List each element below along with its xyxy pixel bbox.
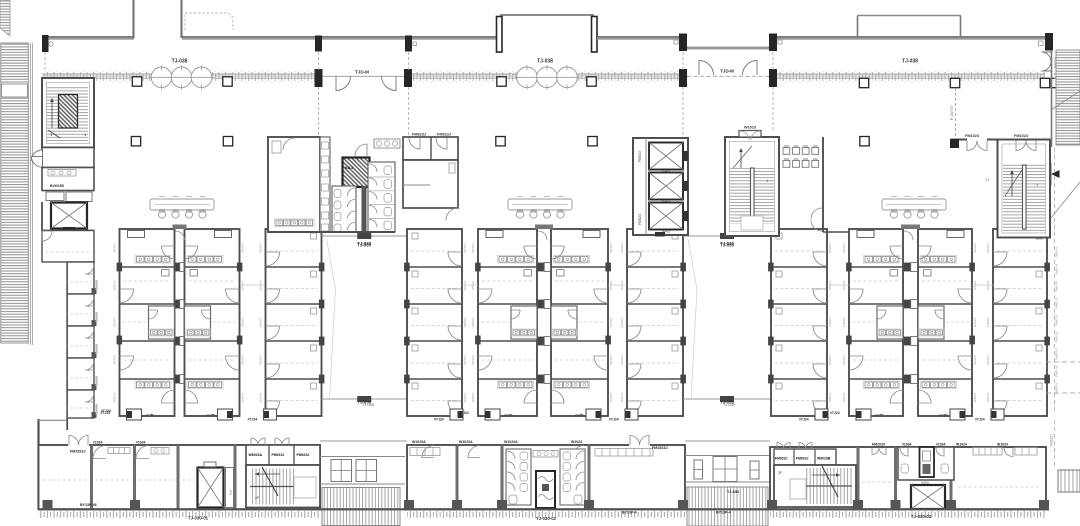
svg-text:BY13P-4: BY13P-4 <box>716 511 731 515</box>
svg-text:W1024: W1024 <box>609 317 613 327</box>
svg-text:BY13P-46: BY13P-46 <box>80 503 97 507</box>
svg-text:TJ: TJ <box>985 178 989 182</box>
svg-text:W1024: W1024 <box>973 392 977 402</box>
svg-text:TJ-038: TJ-038 <box>172 59 188 65</box>
svg-text:TJD-M: TJD-M <box>720 69 734 74</box>
svg-text:W1024: W1024 <box>986 355 990 365</box>
svg-text:KD-4: KD-4 <box>345 166 353 170</box>
svg-text:W6023B: W6023B <box>817 457 831 461</box>
svg-text:TJ-030: TJ-030 <box>357 243 371 248</box>
svg-text:FM923J: FM923J <box>1055 331 1059 343</box>
svg-text:TJ-030-02: TJ-030-02 <box>536 516 557 521</box>
svg-text:FM923J: FM923J <box>412 133 426 137</box>
svg-text:W1024: W1024 <box>986 317 990 327</box>
svg-text:FM1023: FM1023 <box>965 134 979 138</box>
svg-text:FM923J: FM923J <box>1055 246 1059 258</box>
svg-text:FM923J: FM923J <box>1055 314 1059 326</box>
svg-text:FM923J: FM923J <box>1050 434 1054 446</box>
svg-text:W1024: W1024 <box>828 392 832 402</box>
svg-text:W1024: W1024 <box>571 440 582 444</box>
svg-text:W1024: W1024 <box>973 317 977 327</box>
svg-text:TJ-030: TJ-030 <box>727 490 739 494</box>
svg-text:W1024: W1024 <box>471 392 475 402</box>
svg-text:B#603B: B#603B <box>50 184 64 188</box>
svg-text:FM1523J: FM1523J <box>652 446 668 450</box>
svg-text:W1024: W1024 <box>463 317 467 327</box>
svg-text:#TJ24: #TJ24 <box>609 418 619 422</box>
svg-text:W1024: W1024 <box>620 317 624 327</box>
svg-text:W1024: W1024 <box>259 243 263 253</box>
svg-text:W1023A: W1023A <box>504 440 518 444</box>
svg-text:W1024: W1024 <box>113 392 117 402</box>
svg-text:FM923J: FM923J <box>437 133 451 137</box>
svg-text:W1024: W1024 <box>463 243 467 253</box>
svg-text:W1023: W1023 <box>744 126 756 130</box>
svg-text:(AHU): (AHU) <box>921 481 929 485</box>
svg-text:FM823: FM823 <box>638 214 642 225</box>
svg-text:Dwt: Dwt <box>229 490 233 495</box>
svg-text:FM923J: FM923J <box>1055 365 1059 377</box>
svg-text:FM923J: FM923J <box>1055 263 1059 275</box>
svg-text:W1024: W1024 <box>842 392 846 402</box>
svg-text:W1024: W1024 <box>620 243 624 253</box>
svg-text:FM923J: FM923J <box>796 457 809 461</box>
svg-text:BY13P-4: BY13P-4 <box>622 511 637 515</box>
svg-text:W1024: W1024 <box>241 317 245 327</box>
svg-text:FM1523J: FM1523J <box>70 450 86 454</box>
svg-text:TJ-038: TJ-038 <box>902 59 918 65</box>
svg-text:#TJ24: #TJ24 <box>830 411 840 415</box>
svg-text:W1024: W1024 <box>241 392 245 402</box>
svg-text:W1024: W1024 <box>973 243 977 253</box>
svg-text:W1024: W1024 <box>986 243 990 253</box>
svg-text:W1024: W1024 <box>241 355 245 365</box>
svg-text:W1024: W1024 <box>842 243 846 253</box>
svg-text:FM923J: FM923J <box>775 457 788 461</box>
svg-text:FM923J: FM923J <box>1055 348 1059 360</box>
svg-text:W1024: W1024 <box>113 280 117 290</box>
svg-text:W1024: W1024 <box>986 392 990 402</box>
svg-text:W1024: W1024 <box>620 355 624 365</box>
svg-text:#TJ24: #TJ24 <box>975 418 985 422</box>
svg-text:FM923J: FM923J <box>1055 280 1059 292</box>
svg-text:FM923J: FM923J <box>297 453 310 457</box>
svg-text:W1024: W1024 <box>241 243 245 253</box>
svg-text:#TJ24: #TJ24 <box>434 418 444 422</box>
svg-text:TJ-030-01: TJ-030-01 <box>188 516 209 521</box>
svg-text:W1024: W1024 <box>956 443 967 447</box>
svg-text:FM1023: FM1023 <box>1014 134 1028 138</box>
svg-text:W1024: W1024 <box>997 443 1008 447</box>
svg-text:W1024: W1024 <box>113 317 117 327</box>
svg-text:W1024: W1024 <box>828 243 832 253</box>
svg-text:FM923J: FM923J <box>1055 382 1059 394</box>
svg-text:W1024: W1024 <box>609 392 613 402</box>
svg-text:TJ-030: TJ-030 <box>723 403 735 407</box>
svg-text:FM923J: FM923J <box>272 453 285 457</box>
svg-text:W1024: W1024 <box>828 355 832 365</box>
svg-text:W1024: W1024 <box>113 355 117 365</box>
svg-text:#1024: #1024 <box>136 441 146 445</box>
svg-text:W1024: W1024 <box>471 243 475 253</box>
svg-text:TJD-M: TJD-M <box>355 70 369 75</box>
svg-text:W1023A: W1023A <box>459 440 473 444</box>
svg-text:W1023A: W1023A <box>412 440 426 444</box>
svg-text:W1024: W1024 <box>259 392 263 402</box>
svg-text:W6023A: W6023A <box>249 453 263 457</box>
svg-text:FM823: FM823 <box>638 151 642 162</box>
svg-text:W1024: W1024 <box>609 355 613 365</box>
svg-text:#1034: #1034 <box>902 443 912 447</box>
svg-text:FM923J: FM923J <box>1055 297 1059 309</box>
svg-text:W1024: W1024 <box>471 317 475 327</box>
svg-text:W1024: W1024 <box>463 355 467 365</box>
svg-text:W1024: W1024 <box>259 355 263 365</box>
svg-text:W1024: W1024 <box>113 243 117 253</box>
svg-text:TJ-038: TJ-038 <box>537 59 553 65</box>
svg-text:W1024: W1024 <box>620 392 624 402</box>
svg-text:W1024: W1024 <box>471 355 475 365</box>
svg-text:W1024: W1024 <box>259 317 263 327</box>
svg-text:#1034: #1034 <box>936 443 946 447</box>
svg-text:W1024: W1024 <box>842 317 846 327</box>
svg-text:W1024: W1024 <box>828 317 832 327</box>
svg-text:#1024: #1024 <box>93 441 103 445</box>
svg-text:W1024: W1024 <box>973 355 977 365</box>
svg-text:#TJ24: #TJ24 <box>248 418 258 422</box>
svg-text:W1024: W1024 <box>609 243 613 253</box>
svg-text:TJ-030: TJ-030 <box>720 243 734 248</box>
svg-text:#TJ24: #TJ24 <box>101 411 111 415</box>
svg-text:TJ-030: TJ-030 <box>362 403 374 407</box>
svg-text:FM1023: FM1023 <box>872 443 885 447</box>
svg-text:TJ-030-03: TJ-030-03 <box>911 514 932 519</box>
svg-text:F_A#747: F_A#747 <box>950 105 954 120</box>
svg-text:W1024: W1024 <box>463 392 467 402</box>
svg-text:W1024: W1024 <box>842 355 846 365</box>
svg-text:#TJ24: #TJ24 <box>799 418 809 422</box>
